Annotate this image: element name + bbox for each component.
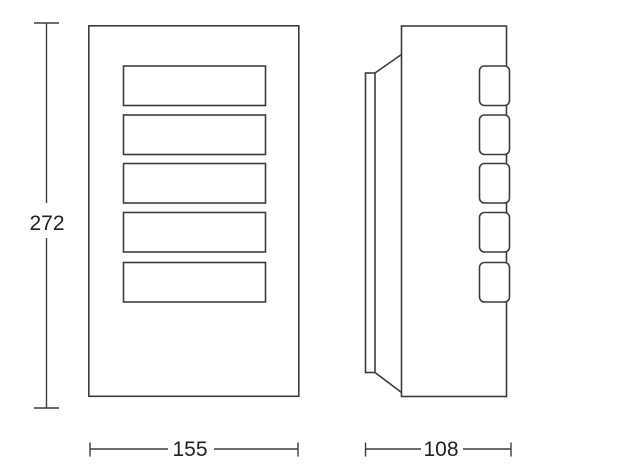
- side-louver-slat-5: [480, 263, 510, 303]
- wall-light-dimension-drawing: 272 155: [0, 0, 632, 474]
- front-louver-slat-5: [124, 263, 266, 303]
- front-louver-slat-1: [124, 66, 266, 106]
- side-view-top-chamfer: [375, 55, 402, 74]
- front-louver-slat-3: [124, 164, 266, 204]
- depth-dimension-label: 108: [423, 438, 458, 461]
- front-view: [89, 26, 299, 397]
- side-louver-slat-3: [480, 164, 510, 204]
- technical-drawing-canvas: 272 155: [0, 0, 632, 474]
- front-louver-slat-4: [124, 213, 266, 253]
- height-dimension: 272: [29, 23, 64, 408]
- side-louver-slat-4: [480, 213, 510, 253]
- side-view-bottom-chamfer: [375, 373, 402, 393]
- front-louver-slat-2: [124, 115, 266, 155]
- side-view-wall-plate: [366, 73, 376, 373]
- width-dimension: 155: [90, 438, 298, 461]
- side-view: [366, 26, 510, 397]
- side-louver-slat-1: [480, 66, 510, 106]
- height-dimension-label: 272: [29, 212, 64, 235]
- depth-dimension: 108: [366, 438, 512, 461]
- side-louver-slat-2: [480, 115, 510, 155]
- width-dimension-label: 155: [172, 438, 207, 461]
- front-view-outline: [89, 26, 299, 397]
